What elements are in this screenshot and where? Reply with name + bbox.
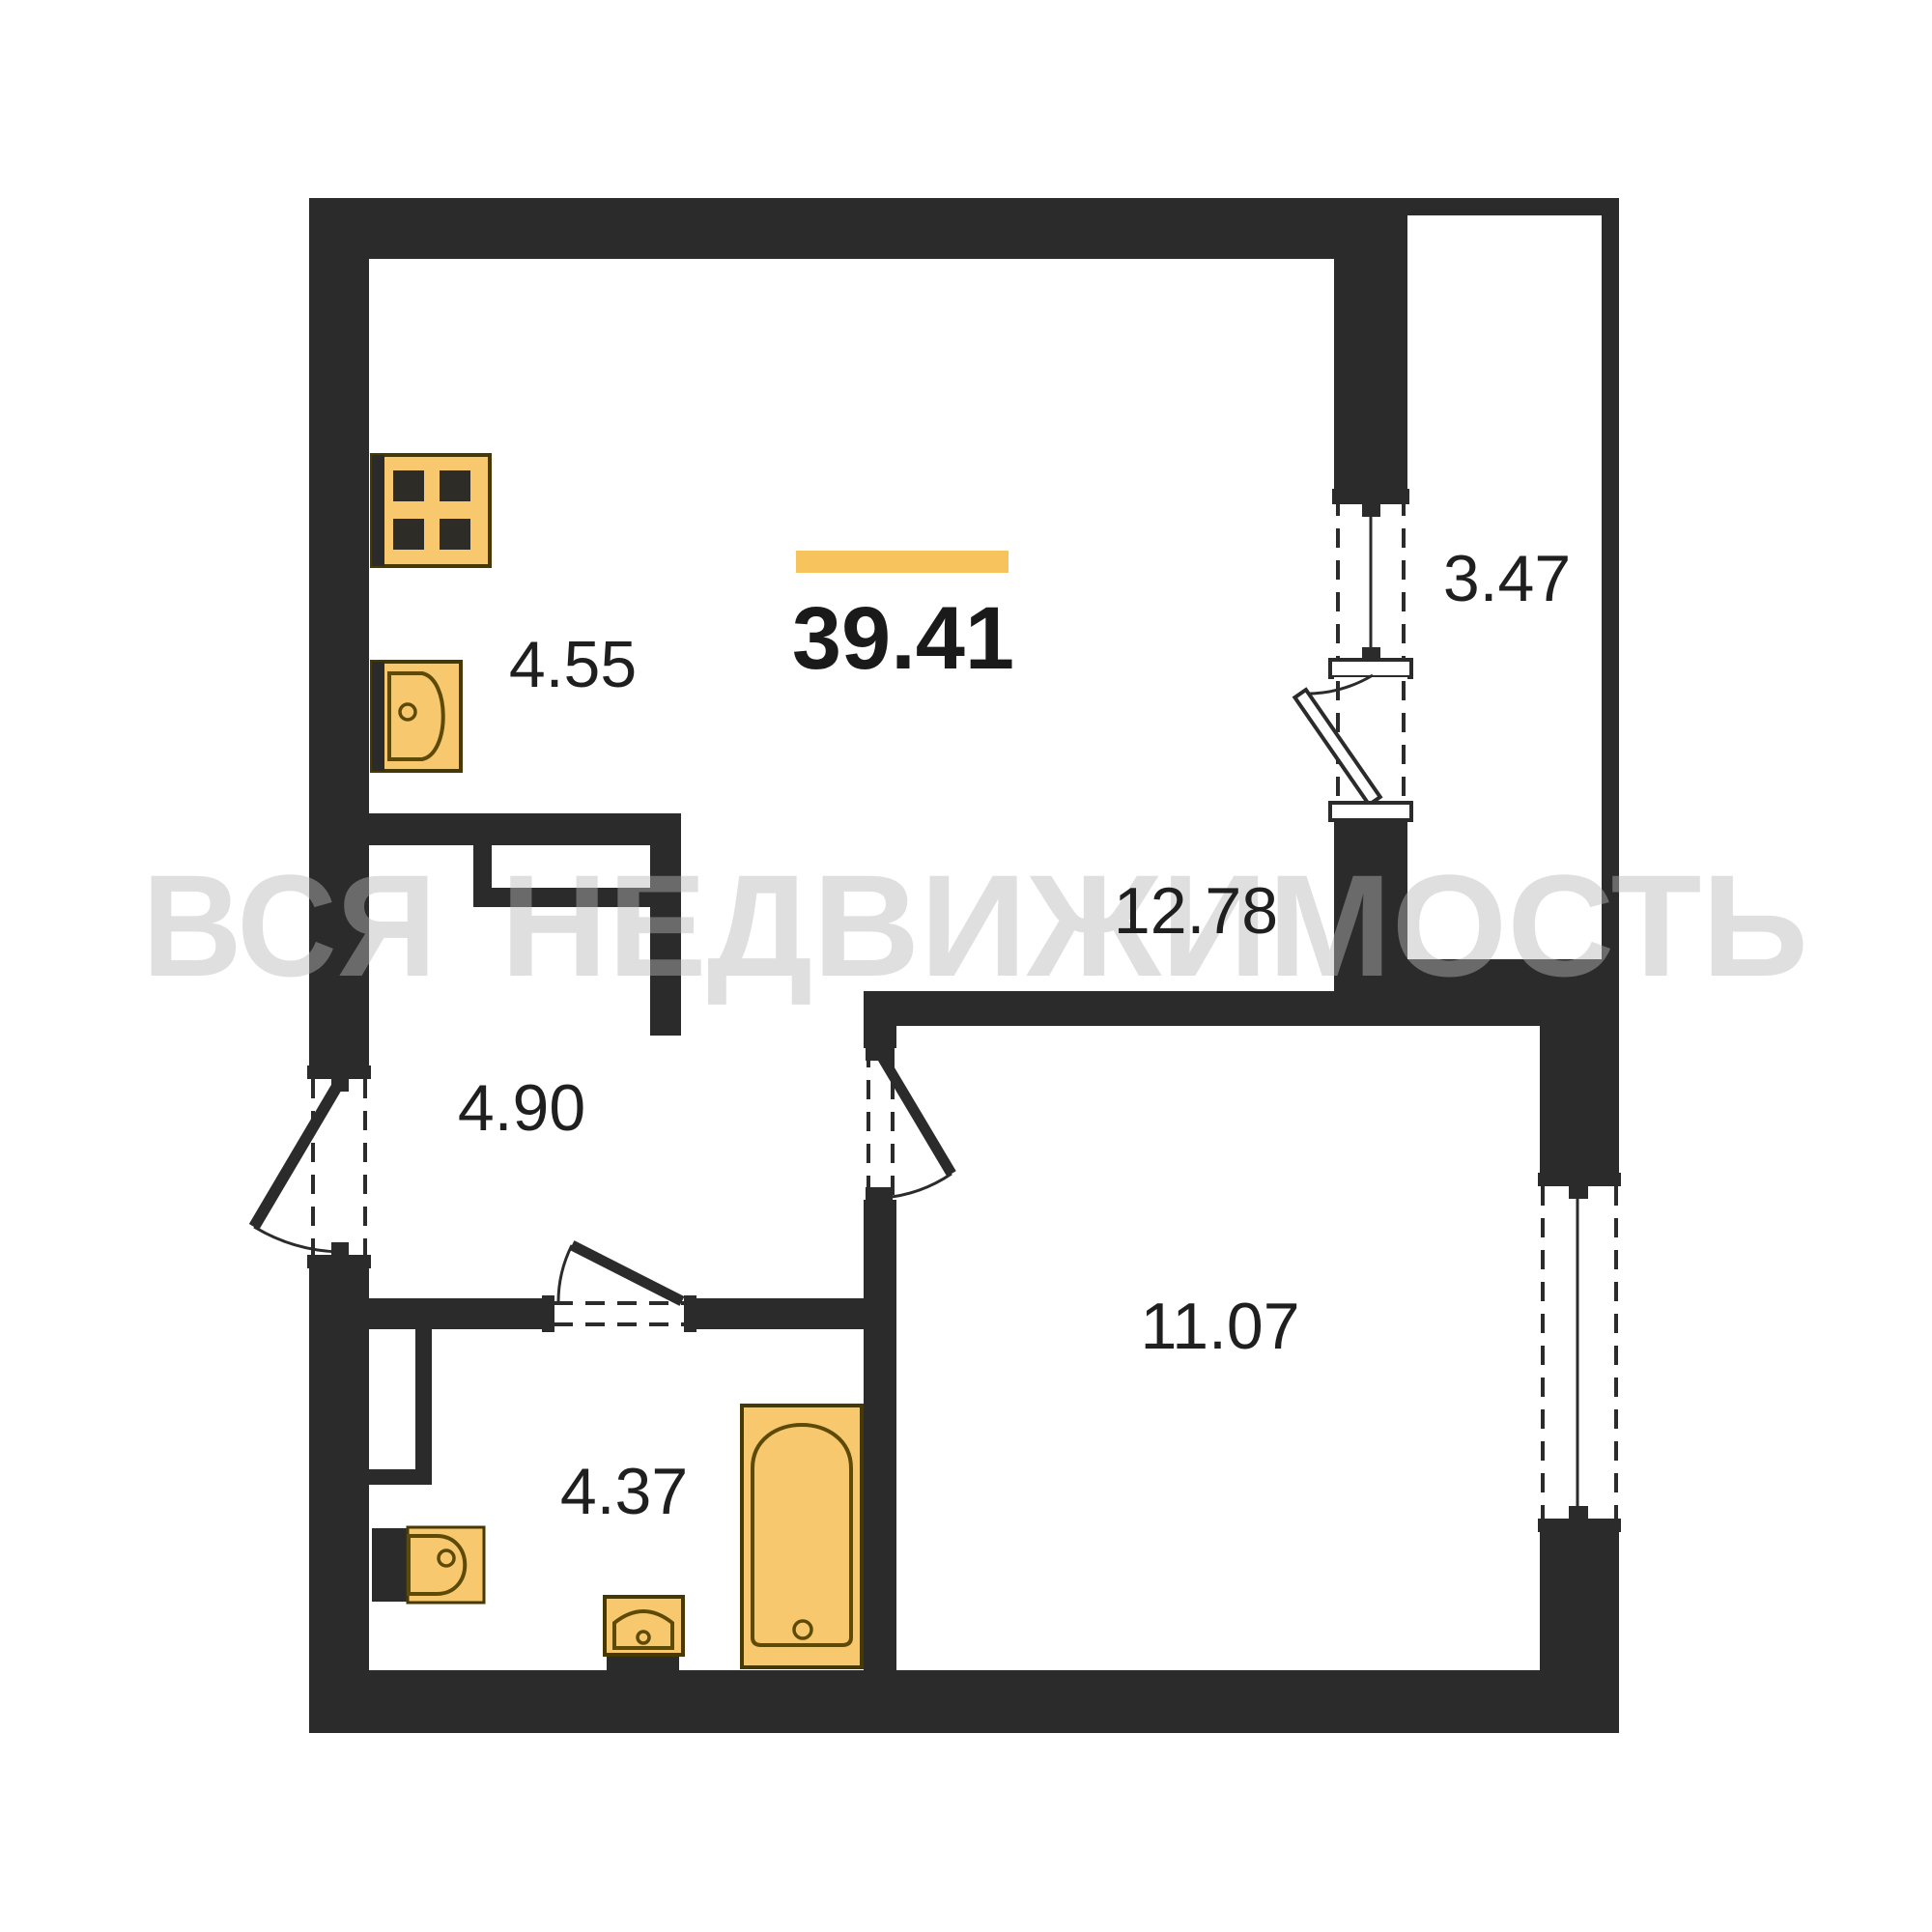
svg-text:12.78: 12.78 [1114, 874, 1278, 948]
svg-text:3.47: 3.47 [1443, 542, 1571, 615]
svg-text:ВСЯ: ВСЯ [142, 844, 437, 1007]
svg-text:4.55: 4.55 [509, 628, 637, 701]
svg-text:39.41: 39.41 [792, 589, 1014, 688]
svg-text:4.37: 4.37 [560, 1455, 688, 1528]
svg-text:4.90: 4.90 [458, 1071, 585, 1145]
svg-text:11.07: 11.07 [1140, 1290, 1299, 1363]
